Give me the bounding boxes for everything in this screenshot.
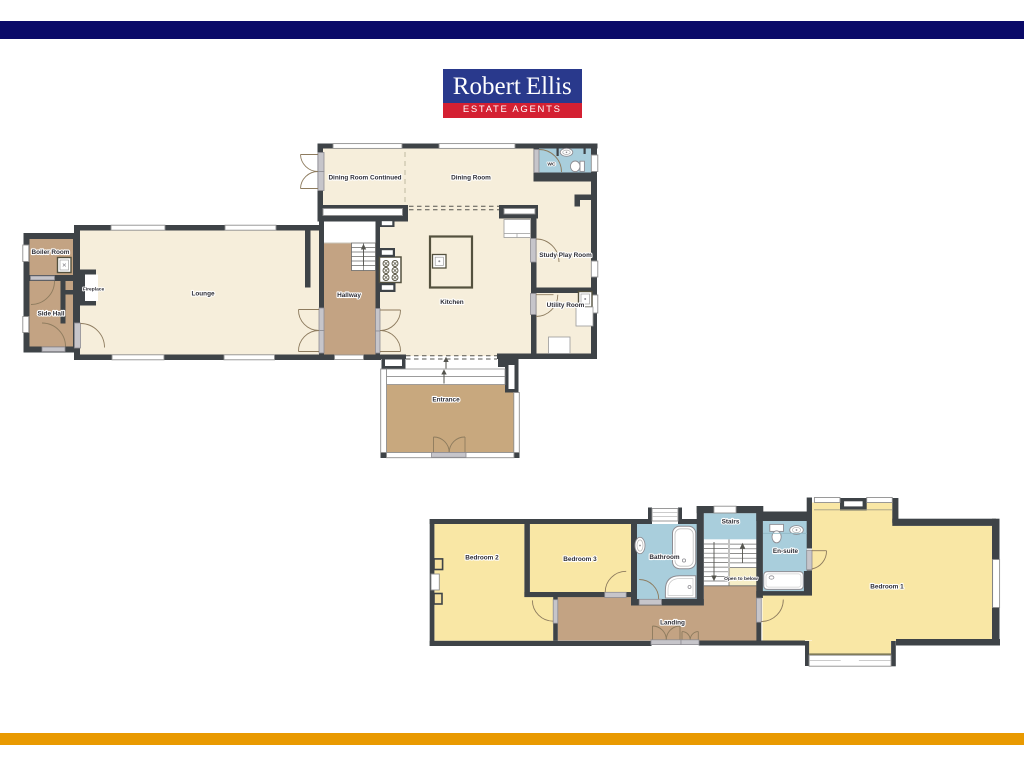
svg-text:Utility Room: Utility Room xyxy=(547,302,585,309)
svg-text:Landing: Landing xyxy=(660,620,685,627)
svg-text:WC: WC xyxy=(547,162,556,168)
svg-text:Fireplace: Fireplace xyxy=(83,287,105,293)
svg-text:Dining Room Continued: Dining Room Continued xyxy=(328,175,401,182)
svg-text:Kitchen: Kitchen xyxy=(440,299,464,306)
svg-text:Boiler Room: Boiler Room xyxy=(32,249,70,256)
svg-text:Lounge: Lounge xyxy=(191,291,215,298)
svg-text:Bedroom 1: Bedroom 1 xyxy=(870,584,904,591)
svg-text:Stairs: Stairs xyxy=(722,519,740,526)
svg-text:Open to below: Open to below xyxy=(724,576,758,582)
svg-text:Bedroom 2: Bedroom 2 xyxy=(465,555,499,562)
svg-text:En-suite: En-suite xyxy=(773,548,799,555)
svg-text:Side Hall: Side Hall xyxy=(38,311,65,318)
svg-text:Bedroom 3: Bedroom 3 xyxy=(563,556,597,563)
svg-text:Study Play Room: Study Play Room xyxy=(539,252,592,259)
svg-text:Entrance: Entrance xyxy=(432,397,460,404)
svg-text:Dining Room: Dining Room xyxy=(451,175,491,182)
svg-text:Hallway: Hallway xyxy=(337,292,361,299)
svg-text:Bathroom: Bathroom xyxy=(649,554,679,561)
